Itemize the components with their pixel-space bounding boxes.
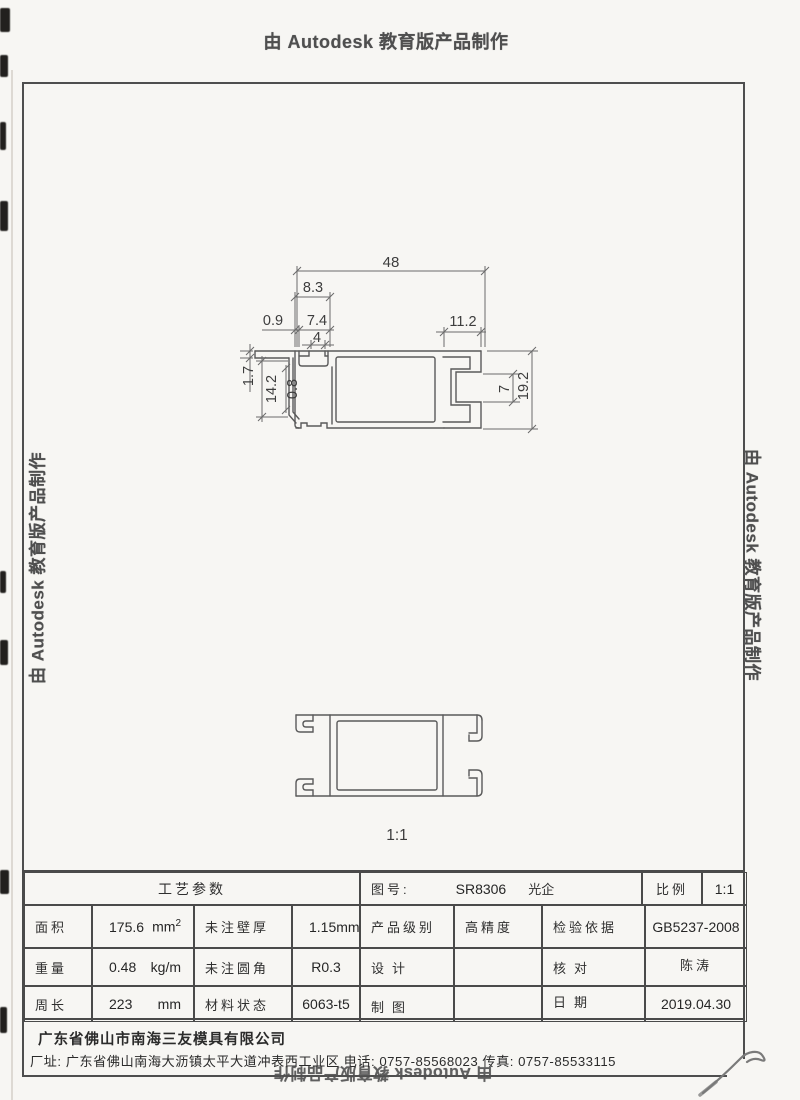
dimension-lines (240, 266, 538, 433)
dim-opening-label: 7 (497, 385, 513, 393)
draft-value-cell (454, 986, 542, 1022)
dimension-labels: 48 8.3 0.9 7.4 4 11.2 1.7 14.2 0.8 7 19.… (241, 254, 532, 403)
pen-mark-blob (700, 1082, 716, 1095)
wall-thickness-value-cell: 1.15 mm (292, 905, 360, 948)
perimeter-label-cell: 周长 (24, 986, 92, 1022)
dim-slot-outer-label: 8.3 (303, 280, 323, 296)
profile2-top-left-hook (296, 715, 313, 732)
profile-bottom-edge (296, 423, 444, 428)
dim-channel-width-label: 11.2 (449, 314, 476, 330)
figure-number-cell: 图号: SR8306 光企 (360, 872, 642, 905)
dim-notch-gap-label: 4 (313, 330, 321, 346)
date-value-cell: 2019.04.30 (645, 986, 747, 1022)
profile2-bottom-left-hook (296, 779, 313, 796)
title-block: 工艺参数 图号: SR8306 光企 比例 1:1 面积 175.6 mm2 未… (22, 870, 745, 1020)
dim-inner-wall-label: 0.8 (285, 379, 301, 399)
weight-label-cell: 重量 (24, 948, 92, 986)
profile-left-lip (255, 351, 289, 358)
profile-top-slot (299, 351, 328, 366)
material-label-cell: 材料状态 (194, 986, 292, 1022)
process-params-header: 工艺参数 (24, 872, 360, 905)
figure-number-label: 图号: (371, 879, 410, 898)
standard-value-cell: GB5237-2008 (645, 905, 747, 948)
wall-thickness-value: 1.15 (309, 919, 336, 935)
check-label-cell: 核对 (542, 948, 645, 986)
profile2-main-cavity (337, 721, 437, 790)
dim-48-lines (297, 266, 485, 347)
design-value-cell (454, 948, 542, 986)
dim-height-label: 19.2 (516, 372, 532, 400)
figure-number-value: SR8306 (456, 881, 507, 897)
area-value-cell: 175.6 mm2 (92, 905, 194, 948)
scale-label-cell: 比例 (642, 872, 702, 905)
company-name: 广东省佛山市南海三友模具有限公司 (38, 1028, 286, 1049)
design-label-cell: 设计 (360, 948, 454, 986)
fillet-value-cell: R0.3 (292, 948, 360, 986)
weight-value-cell: 0.48 kg/m (92, 948, 194, 986)
dim-wall-thin-label: 0.9 (263, 313, 283, 329)
area-label-cell: 面积 (24, 905, 92, 948)
grade-value-cell: 高精度 (454, 905, 542, 948)
wall-thickness-unit: mm (336, 919, 359, 935)
profile-main-cavity (336, 357, 435, 422)
draft-label-cell: 制图 (360, 986, 454, 1022)
perimeter-unit: mm (158, 996, 181, 1012)
dim-cavity-height-label: 14.2 (264, 375, 280, 403)
date-label-cell: 日期 (542, 986, 645, 1022)
perimeter-value: 223 (109, 996, 132, 1012)
area-unit: mm2 (152, 918, 181, 935)
weight-value: 0.48 (109, 959, 136, 975)
check-value-cell: 陈涛 (645, 948, 747, 986)
grade-label-cell: 产品级别 (360, 905, 454, 948)
perimeter-value-cell: 223 mm (92, 986, 194, 1022)
material-value-cell: 6063-t5 (292, 986, 360, 1022)
profile-right-c-channel (444, 351, 481, 428)
figure-name-value: 光企 (528, 879, 554, 898)
profile-section-actual-size (296, 715, 482, 796)
standard-label-cell: 检验依据 (542, 905, 645, 948)
weight-unit: kg/m (151, 959, 181, 975)
profile-slot-tabs (299, 351, 328, 356)
scale-caption: 1:1 (386, 827, 408, 844)
profile2-top-edge (296, 715, 482, 720)
profile2-upper-arm (469, 715, 482, 741)
company-address: 厂址: 广东省佛山南海大沥镇太平大道冲表西工业区 电话: 0757-855680… (30, 1051, 616, 1070)
profile2-bottom-edge (296, 791, 482, 796)
scanned-drawing-sheet: 由 Autodesk 教育版产品制作 由 Autodesk 教育版产品制作 由 … (0, 0, 800, 1100)
pen-mark (700, 1052, 765, 1095)
dim-slot-inner-label: 7.4 (307, 313, 327, 329)
dim-11-2-lines (436, 327, 486, 347)
dim-lip-label: 1.7 (241, 366, 257, 386)
area-value: 175.6 (109, 919, 144, 935)
wall-thickness-label-cell: 未注壁厚 (194, 905, 292, 948)
dim-width-label: 48 (383, 254, 400, 271)
profile2-lower-arm (469, 770, 482, 796)
scale-value-cell: 1:1 (702, 872, 747, 905)
fillet-label-cell: 未注圆角 (194, 948, 292, 986)
